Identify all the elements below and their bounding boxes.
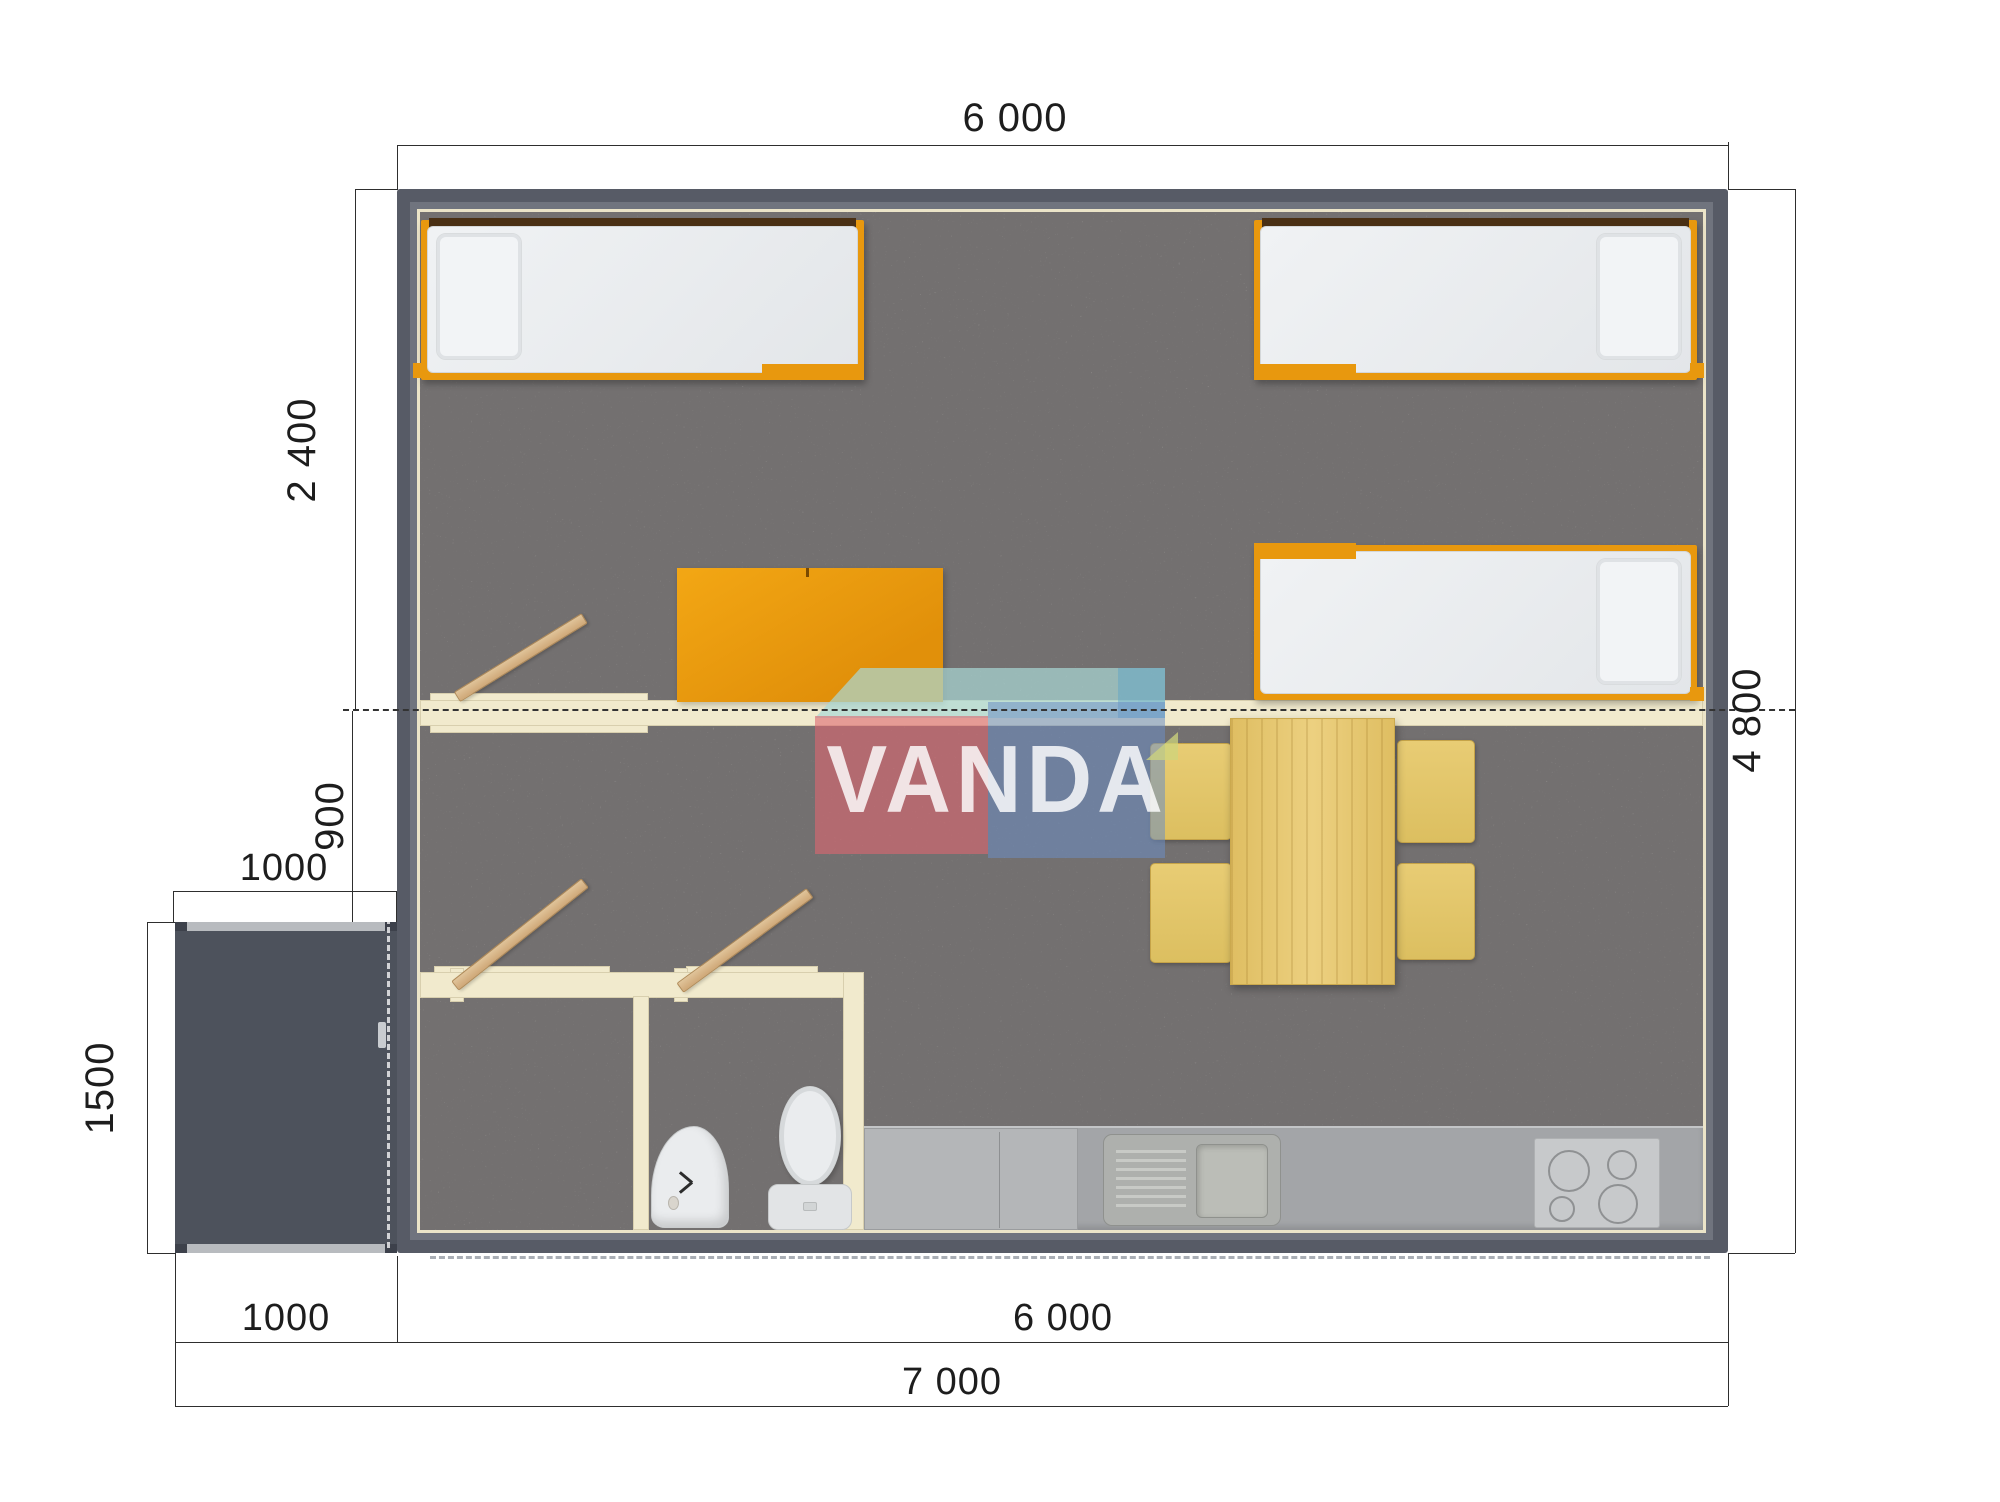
- dim-tick: [397, 1256, 398, 1342]
- bathroom-north-wall: [420, 972, 863, 998]
- porch-edge-top: [175, 922, 397, 931]
- watermark-brand: VANDA: [831, 700, 1164, 860]
- dining-table: [1230, 718, 1395, 985]
- south-exterior-dashes: [430, 1256, 1710, 1259]
- dim-label-bottom-total: 7 000: [852, 1360, 1052, 1402]
- dim-label-porch-depth: 1500: [78, 998, 122, 1178]
- dim-line-porch-width: [173, 891, 397, 892]
- toilet-lid: [779, 1086, 841, 1186]
- bed-frame-corner: [413, 363, 427, 378]
- dim-tick: [355, 189, 397, 190]
- dim-label-total-depth: 4 800: [1725, 620, 1769, 820]
- dim-tick: [397, 145, 398, 190]
- bed-frame-rail: [1254, 364, 1356, 380]
- burner-small: [1549, 1196, 1575, 1222]
- dim-tick: [1728, 1253, 1729, 1342]
- floor-plan-canvas: VANDA 6 000 2 400 900 1000 1500 4 800 10…: [0, 0, 2000, 1502]
- porch-corner-cap: [175, 922, 187, 931]
- entrance-porch: [175, 922, 397, 1253]
- dim-line-top: [397, 145, 1728, 146]
- porch-edge-bottom: [175, 1244, 397, 1253]
- bed-mid-right-pillow: [1596, 558, 1682, 685]
- dim-label-bottom-main: 6 000: [963, 1296, 1163, 1338]
- dim-label-top-width: 6 000: [915, 96, 1115, 140]
- dim-tick: [1728, 189, 1795, 190]
- dim-tick: [1728, 142, 1729, 190]
- bed-frame-corner: [1690, 687, 1704, 701]
- desk-handle-mark: [806, 568, 809, 577]
- bed-frame-rail: [1254, 543, 1356, 559]
- dining-chair: [1397, 863, 1475, 960]
- burner-small: [1607, 1150, 1637, 1180]
- dim-tick: [175, 1342, 176, 1406]
- dim-label-bottom-porch: 1000: [186, 1296, 386, 1338]
- dining-chair: [1150, 863, 1232, 963]
- dim-label-bedroom-depth: 2 400: [280, 360, 324, 540]
- dim-tick: [147, 922, 175, 923]
- dim-tick: [173, 891, 174, 922]
- flush-button: [803, 1202, 817, 1211]
- appliance-divider: [999, 1132, 1000, 1228]
- drainboard: [1116, 1150, 1186, 1212]
- dim-tick: [396, 891, 397, 922]
- entry-door-handle: [378, 1022, 386, 1048]
- west-wall-window-door-dashes: [387, 216, 390, 1248]
- kitchen-appliance: [864, 1128, 1078, 1230]
- burner-large: [1598, 1184, 1638, 1224]
- dim-label-porch-width: 1000: [184, 846, 384, 888]
- bed-top-right-pillow: [1596, 233, 1682, 360]
- dim-tick: [1728, 1253, 1795, 1254]
- dim-line-right: [1795, 189, 1796, 1253]
- dim-tick: [175, 1253, 176, 1342]
- dim-line-bottom-1: [175, 1342, 1728, 1343]
- porch-corner-cap: [175, 1244, 187, 1253]
- dim-line-porch-depth: [147, 922, 148, 1253]
- dim-line-bottom-2: [175, 1406, 1728, 1407]
- bed-top-left-pillow: [436, 233, 522, 360]
- bed-frame-corner: [1690, 363, 1704, 378]
- sink-basin: [1196, 1144, 1268, 1218]
- dining-chair: [1397, 740, 1475, 843]
- soap-bottle: [668, 1196, 679, 1210]
- dim-line-left-upper: [355, 189, 356, 711]
- dim-tick: [1728, 1342, 1729, 1406]
- bed-frame-rail: [762, 364, 864, 380]
- burner-large: [1548, 1150, 1590, 1192]
- partition-axis-dashed-line: [343, 709, 1795, 711]
- bathroom-divider-wall: [633, 996, 649, 1230]
- dim-tick: [147, 1253, 175, 1254]
